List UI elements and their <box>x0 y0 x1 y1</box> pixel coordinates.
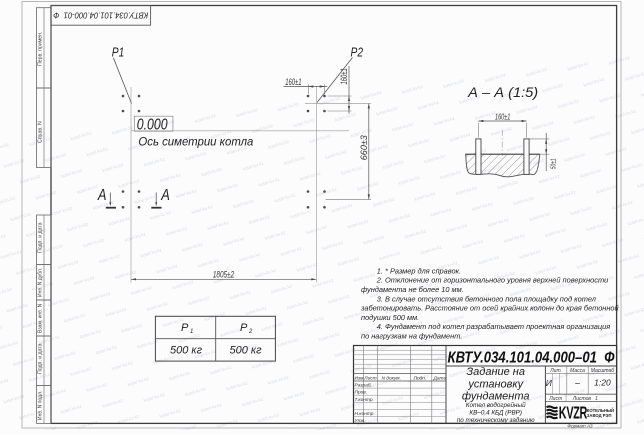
svg-text:Ось симетрии котла: Ось симетрии котла <box>138 134 253 148</box>
svg-text:kotel-kv.kz: kotel-kv.kz <box>44 387 67 398</box>
svg-text:kotel-kv.kz: kotel-kv.kz <box>353 272 376 283</box>
svg-text:N докум.: N докум. <box>382 375 401 381</box>
svg-text:kotel-kv.kz: kotel-kv.kz <box>363 234 386 245</box>
svg-text:kotel-kv.kz: kotel-kv.kz <box>439 169 462 180</box>
svg-text:kotel-kv.kz: kotel-kv.kz <box>283 390 306 401</box>
svg-text:kotel-kv.kz: kotel-kv.kz <box>541 82 564 93</box>
svg-text:kotel-kv.kz: kotel-kv.kz <box>462 238 485 249</box>
svg-text:kotel-kv.kz: kotel-kv.kz <box>264 230 287 241</box>
svg-text:660±3: 660±3 <box>359 135 369 160</box>
svg-text:kotel-kv.kz: kotel-kv.kz <box>252 123 275 134</box>
svg-text:kotel-kv.kz: kotel-kv.kz <box>9 211 32 222</box>
svg-text:kotel-kv.kz: kotel-kv.kz <box>608 55 631 66</box>
svg-text:kotel-kv.kz: kotel-kv.kz <box>615 108 638 119</box>
svg-text:1. * Размер для справок.: 1. * Размер для справок. <box>377 266 461 275</box>
svg-text:kotel-kv.kz: kotel-kv.kz <box>175 424 198 430</box>
svg-text:Пров.: Пров. <box>355 390 368 396</box>
svg-text:А – А (1:5): А – А (1:5) <box>467 84 538 100</box>
svg-text:Задание на: Задание на <box>466 366 525 378</box>
svg-text:kotel-kv.kz: kotel-kv.kz <box>6 302 29 313</box>
svg-text:kotel-kv.kz: kotel-kv.kz <box>398 410 421 421</box>
svg-text:kotel-kv.kz: kotel-kv.kz <box>165 225 188 236</box>
svg-text:kotel-kv.kz: kotel-kv.kz <box>446 222 469 233</box>
svg-text:kotel-kv.kz: kotel-kv.kz <box>99 253 122 264</box>
svg-text:kotel-kv.kz: kotel-kv.kz <box>200 402 223 413</box>
svg-text:забетонировать. Расстояние от: забетонировать. Расстояние от осей крайн… <box>360 304 619 313</box>
svg-text:kotel-kv.kz: kotel-kv.kz <box>382 159 405 170</box>
svg-text:kotel-kv.kz: kotel-kv.kz <box>105 306 128 317</box>
svg-text:Листов: Листов <box>572 396 592 402</box>
svg-text:kotel-kv.kz: kotel-kv.kz <box>236 107 259 118</box>
svg-text:kotel-kv.kz: kotel-kv.kz <box>337 256 360 267</box>
svg-text:kotel-kv.kz: kotel-kv.kz <box>223 236 246 247</box>
svg-text:Р: Р <box>181 322 189 334</box>
svg-text:kotel-kv.kz: kotel-kv.kz <box>306 224 329 235</box>
svg-text:kotel-kv.kz: kotel-kv.kz <box>181 241 204 252</box>
svg-text:kotel-kv.kz: kotel-kv.kz <box>401 84 424 95</box>
svg-text:kotel-kv.kz: kotel-kv.kz <box>134 194 157 205</box>
svg-text:kotel-kv.kz: kotel-kv.kz <box>372 196 395 207</box>
svg-text:kotel-kv.kz: kotel-kv.kz <box>143 156 166 167</box>
svg-text:kotel-kv.kz: kotel-kv.kz <box>579 167 602 178</box>
svg-text:Формат А3: Формат А3 <box>567 423 593 428</box>
svg-text:kotel-kv.kz: kotel-kv.kz <box>188 295 211 306</box>
svg-text:kotel-kv.kz: kotel-kv.kz <box>137 338 160 349</box>
svg-text:kotel-kv.kz: kotel-kv.kz <box>261 321 284 332</box>
svg-text:kotel-kv.kz: kotel-kv.kz <box>324 384 347 395</box>
svg-text:kotel-kv.kz: kotel-kv.kz <box>528 211 551 222</box>
svg-text:kotel-kv.kz: kotel-kv.kz <box>589 130 612 141</box>
svg-text:kotel-kv.kz: kotel-kv.kz <box>255 267 278 278</box>
svg-text:kotel-kv.kz: kotel-kv.kz <box>627 215 644 226</box>
svg-text:kotel-kv.kz: kotel-kv.kz <box>270 283 293 294</box>
svg-text:kotel-kv.kz: kotel-kv.kz <box>621 162 644 173</box>
svg-text:kotel-kv.kz: kotel-kv.kz <box>201 166 224 177</box>
svg-text:kotel-kv.kz: kotel-kv.kz <box>532 120 555 131</box>
svg-text:по техническому заданию: по техническому заданию <box>457 416 535 424</box>
svg-text:kotel-kv.kz: kotel-kv.kz <box>471 201 494 212</box>
svg-text:kotel-kv.kz: kotel-kv.kz <box>156 263 179 274</box>
svg-text:kotel-kv.kz: kotel-kv.kz <box>382 395 405 406</box>
svg-text:kotel-kv.kz: kotel-kv.kz <box>277 101 300 112</box>
svg-text:kotel-kv.kz: kotel-kv.kz <box>538 173 561 184</box>
svg-text:kotel-kv.kz: kotel-kv.kz <box>175 188 198 199</box>
svg-text:Р2: Р2 <box>351 45 364 60</box>
svg-text:1:20: 1:20 <box>594 378 611 388</box>
svg-text:50±1: 50±1 <box>548 158 557 169</box>
svg-text:kotel-kv.kz: kotel-kv.kz <box>118 178 141 189</box>
svg-text:kotel-kv.kz: kotel-kv.kz <box>290 208 313 219</box>
svg-text:kotel-kv.kz: kotel-kv.kz <box>331 202 354 213</box>
svg-text:kotel-kv.kz: kotel-kv.kz <box>226 380 249 391</box>
svg-text:kotel-kv.kz: kotel-kv.kz <box>474 110 497 121</box>
svg-text:kotel-kv.kz: kotel-kv.kz <box>633 269 644 280</box>
svg-text:kotel-kv.kz: kotel-kv.kz <box>554 189 577 200</box>
svg-text:500 кг: 500 кг <box>229 345 262 357</box>
svg-text:kotel-kv.kz: kotel-kv.kz <box>595 183 618 194</box>
svg-text:kotel-kv.kz: kotel-kv.kz <box>45 152 68 163</box>
svg-text:kotel-kv.kz: kotel-kv.kz <box>184 386 207 397</box>
svg-text:kotel-kv.kz: kotel-kv.kz <box>143 392 166 403</box>
svg-text:Разраб.: Разраб. <box>355 383 372 389</box>
svg-text:kotel-kv.kz: kotel-kv.kz <box>420 244 443 255</box>
svg-text:kotel-kv.kz: kotel-kv.kz <box>608 290 631 301</box>
svg-text:KVZR: KVZR <box>559 404 588 423</box>
svg-text:установку: установку <box>467 379 524 391</box>
svg-text:kotel-kv.kz: kotel-kv.kz <box>130 285 153 296</box>
svg-text:kotel-kv.kz: kotel-kv.kz <box>0 142 10 153</box>
svg-text:kotel-kv.kz: kotel-kv.kz <box>0 324 4 335</box>
svg-text:kotel-kv.kz: kotel-kv.kz <box>630 124 644 135</box>
svg-text:kotel-kv.kz: kotel-kv.kz <box>216 182 239 193</box>
svg-text:kotel-kv.kz: kotel-kv.kz <box>76 419 99 430</box>
svg-text:kotel-kv.kz: kotel-kv.kz <box>210 364 233 375</box>
svg-text:kotel-kv.kz: kotel-kv.kz <box>325 149 348 160</box>
svg-text:1: 1 <box>190 329 193 335</box>
svg-text:kotel-kv.kz: kotel-kv.kz <box>67 221 90 232</box>
svg-text:kotel-kv.kz: kotel-kv.kz <box>95 344 118 355</box>
svg-text:160±1: 160±1 <box>285 77 301 87</box>
svg-text:kotel-kv.kz: kotel-kv.kz <box>86 146 109 157</box>
svg-text:kotel-kv.kz: kotel-kv.kz <box>102 398 125 409</box>
svg-text:Справ. N: Справ. N <box>38 121 44 143</box>
svg-text:kotel-kv.kz: kotel-kv.kz <box>35 425 58 430</box>
svg-text:Лист: Лист <box>548 396 562 402</box>
svg-text:Перв. примен.: Перв. примен. <box>38 32 44 67</box>
svg-text:kotel-kv.kz: kotel-kv.kz <box>16 265 39 276</box>
svg-text:160±1: 160±1 <box>339 68 349 84</box>
svg-text:kotel-kv.kz: kotel-kv.kz <box>455 185 478 196</box>
svg-text:Инв. N подл.: Инв. N подл. <box>38 391 44 420</box>
svg-text:kotel-kv.kz: kotel-kv.kz <box>439 405 462 416</box>
svg-text:2: 2 <box>248 329 253 335</box>
svg-text:kotel-kv.kz: kotel-kv.kz <box>293 353 316 364</box>
svg-text:kotel-kv.kz: kotel-kv.kz <box>86 382 109 393</box>
svg-text:kotel-kv.kz: kotel-kv.kz <box>172 279 195 290</box>
svg-text:kotel-kv.kz: kotel-kv.kz <box>624 306 644 317</box>
svg-text:Лист: Лист <box>363 375 376 381</box>
svg-text:kotel-kv.kz: kotel-kv.kz <box>245 305 268 316</box>
svg-text:kotel-kv.kz: kotel-kv.kz <box>0 195 16 206</box>
svg-text:kotel-kv.kz: kotel-kv.kz <box>315 186 338 197</box>
svg-text:kotel-kv.kz: kotel-kv.kz <box>274 192 297 203</box>
svg-text:kotel-kv.kz: kotel-kv.kz <box>477 254 500 265</box>
svg-text:Котел водогрейный: Котел водогрейный <box>466 401 526 409</box>
svg-text:kotel-kv.kz: kotel-kv.kz <box>513 195 536 206</box>
svg-text:kotel-kv.kz: kotel-kv.kz <box>0 179 1 190</box>
svg-text:kotel-kv.kz: kotel-kv.kz <box>89 291 112 302</box>
svg-text:Масса: Масса <box>570 368 585 374</box>
svg-text:kotel-kv.kz: kotel-kv.kz <box>242 160 265 171</box>
svg-text:kotel-kv.kz: kotel-kv.kz <box>102 162 125 173</box>
svg-text:фундамента: фундамента <box>462 391 530 403</box>
svg-text:Подп.: Подп. <box>414 375 427 381</box>
svg-text:kotel-kv.kz: kotel-kv.kz <box>0 233 7 244</box>
svg-text:kotel-kv.kz: kotel-kv.kz <box>73 275 96 286</box>
svg-text:kotel-kv.kz: kotel-kv.kz <box>70 130 93 141</box>
svg-text:kotel-kv.kz: kotel-kv.kz <box>299 170 322 181</box>
svg-text:kotel-kv.kz: kotel-kv.kz <box>321 240 344 251</box>
svg-text:kotel-kv.kz: kotel-kv.kz <box>391 357 414 368</box>
svg-text:kotel-kv.kz: kotel-kv.kz <box>60 168 83 179</box>
svg-text:по нагрузкам на фундамент.: по нагрузкам на фундамент. <box>361 332 462 341</box>
svg-text:kotel-kv.kz: kotel-kv.kz <box>232 198 255 209</box>
svg-text:kotel-kv.kz: kotel-kv.kz <box>516 104 539 115</box>
svg-text:1805±2: 1805±2 <box>213 269 234 279</box>
svg-text:kotel-kv.kz: kotel-kv.kz <box>12 356 35 367</box>
svg-text:kotel-kv.kz: kotel-kv.kz <box>484 72 507 83</box>
svg-text:kotel-kv.kz: kotel-kv.kz <box>124 231 147 242</box>
svg-text:kotel-kv.kz: kotel-kv.kz <box>114 269 137 280</box>
svg-text:kotel-kv.kz: kotel-kv.kz <box>347 218 370 229</box>
svg-text:kotel-kv.kz: kotel-kv.kz <box>576 259 599 270</box>
svg-text:kotel-kv.kz: kotel-kv.kz <box>328 293 351 304</box>
svg-text:kotel-kv.kz: kotel-kv.kz <box>624 71 644 82</box>
svg-text:kotel-kv.kz: kotel-kv.kz <box>611 199 634 210</box>
svg-text:kotel-kv.kz: kotel-kv.kz <box>258 176 281 187</box>
svg-text:kotel-kv.kz: kotel-kv.kz <box>376 105 399 116</box>
svg-text:kotel-kv.kz: kotel-kv.kz <box>3 158 26 169</box>
svg-text:kotel-kv.kz: kotel-kv.kz <box>621 397 644 408</box>
svg-text:–: – <box>574 378 580 388</box>
svg-text:КВТУ.034.101.04.000-01 Ф: КВТУ.034.101.04.000-01 Ф <box>53 10 148 20</box>
svg-text:КВ–0,4 КБД (РВР): КВ–0,4 КБД (РВР) <box>469 410 522 417</box>
svg-text:kotel-kv.kz: kotel-kv.kz <box>519 248 542 259</box>
svg-text:kotel-kv.kz: kotel-kv.kz <box>379 250 402 261</box>
svg-text:Подп. и дата: Подп. и дата <box>38 343 44 374</box>
svg-text:kotel-kv.kz: kotel-kv.kz <box>398 175 421 186</box>
svg-text:kotel-kv.kz: kotel-kv.kz <box>449 131 472 142</box>
svg-text:kotel-kv.kz: kotel-kv.kz <box>433 115 456 126</box>
svg-text:kotel-kv.kz: kotel-kv.kz <box>277 337 300 348</box>
svg-text:kotel-kv.kz: kotel-kv.kz <box>108 215 131 226</box>
svg-text:kotel-kv.kz: kotel-kv.kz <box>0 377 10 388</box>
svg-text:Р: Р <box>240 322 248 334</box>
svg-text:Масштаб: Масштаб <box>591 368 615 374</box>
svg-text:kotel-kv.kz: kotel-kv.kz <box>54 350 77 361</box>
svg-text:kotel-kv.kz: kotel-kv.kz <box>360 89 383 100</box>
svg-text:Т.контр.: Т.контр. <box>355 397 374 403</box>
svg-text:Утв.: Утв. <box>355 418 366 424</box>
svg-text:kotel-kv.kz: kotel-kv.kz <box>548 136 571 147</box>
svg-text:kotel-kv.kz: kotel-kv.kz <box>614 344 637 355</box>
svg-text:Инв. N дубл.: Инв. N дубл. <box>38 268 44 297</box>
svg-text:kotel-kv.kz: kotel-kv.kz <box>544 227 567 238</box>
svg-text:kotel-kv.kz: kotel-kv.kz <box>296 262 319 273</box>
svg-text:kotel-kv.kz: kotel-kv.kz <box>490 126 513 137</box>
svg-text:kotel-kv.kz: kotel-kv.kz <box>586 221 609 232</box>
svg-text:КВТУ.034.101.04.000–01 Ф: КВТУ.034.101.04.000–01 Ф <box>448 349 616 366</box>
svg-text:kotel-kv.kz: kotel-kv.kz <box>57 259 80 270</box>
svg-text:2. Отклонение от горизонтально: 2. Отклонение от горизонтального уровня … <box>376 276 608 285</box>
svg-text:kotel-kv.kz: kotel-kv.kz <box>525 66 548 77</box>
svg-text:И: И <box>546 378 553 388</box>
svg-text:фундамента не более 10 мм.: фундамента не более 10 мм. <box>361 285 464 294</box>
svg-text:kotel-kv.kz: kotel-kv.kz <box>251 358 274 369</box>
svg-text:kotel-kv.kz: kotel-kv.kz <box>207 220 230 231</box>
svg-text:А: А <box>97 187 106 204</box>
svg-text:kotel-kv.kz: kotel-kv.kz <box>79 328 102 339</box>
svg-text:kotel-kv.kz: kotel-kv.kz <box>63 312 86 323</box>
svg-text:Дата: Дата <box>433 375 447 381</box>
svg-text:kotel-kv.kz: kotel-kv.kz <box>366 143 389 154</box>
svg-text:kotel-kv.kz: kotel-kv.kz <box>599 92 622 103</box>
svg-text:Взам. инв. N: Взам. инв. N <box>38 303 44 333</box>
svg-text:kotel-kv.kz: kotel-kv.kz <box>423 389 446 400</box>
svg-text:kotel-kv.kz: kotel-kv.kz <box>159 408 182 419</box>
svg-text:kotel-kv.kz: kotel-kv.kz <box>258 412 281 423</box>
svg-text:kotel-kv.kz: kotel-kv.kz <box>375 341 398 352</box>
svg-text:kotel-kv.kz: kotel-kv.kz <box>293 117 316 128</box>
svg-text:kotel-kv.kz: kotel-kv.kz <box>341 165 364 176</box>
svg-text:kotel-kv.kz: kotel-kv.kz <box>570 205 593 216</box>
svg-text:kotel-kv.kz: kotel-kv.kz <box>309 369 332 380</box>
svg-text:kotel-kv.kz: kotel-kv.kz <box>497 179 520 190</box>
svg-text:kotel-kv.kz: kotel-kv.kz <box>640 322 644 333</box>
svg-text:kotel-kv.kz: kotel-kv.kz <box>35 189 58 200</box>
svg-text:kotel-kv.kz: kotel-kv.kz <box>150 210 173 221</box>
svg-text:0.000: 0.000 <box>137 116 168 133</box>
svg-text:Лит.: Лит. <box>549 368 562 374</box>
svg-text:kotel-kv.kz: kotel-kv.kz <box>83 237 106 248</box>
svg-text:kotel-kv.kz: kotel-kv.kz <box>280 246 303 257</box>
svg-text:kotel-kv.kz: kotel-kv.kz <box>76 184 99 195</box>
svg-text:Подп. и дата: Подп. и дата <box>38 222 44 253</box>
svg-text:500 кг: 500 кг <box>170 345 203 357</box>
svg-text:kotel-kv.kz: kotel-kv.kz <box>267 139 290 150</box>
svg-text:kotel-kv.kz: kotel-kv.kz <box>557 334 580 345</box>
svg-text:kotel-kv.kz: kotel-kv.kz <box>564 152 587 163</box>
svg-text:kotel-kv.kz: kotel-kv.kz <box>51 205 74 216</box>
svg-text:kotel-kv.kz: kotel-kv.kz <box>127 376 150 387</box>
svg-text:3. В случае отсутствия бетонно: 3. В случае отсутствия бетонного пола пл… <box>377 294 597 303</box>
svg-text:1: 1 <box>595 396 598 402</box>
svg-text:kotel-kv.kz: kotel-kv.kz <box>309 133 332 144</box>
svg-text:kotel-kv.kz: kotel-kv.kz <box>630 360 644 371</box>
svg-text:kotel-kv.kz: kotel-kv.kz <box>636 413 644 424</box>
svg-text:kotel-kv.kz: kotel-kv.kz <box>229 289 252 300</box>
svg-text:kotel-kv.kz: kotel-kv.kz <box>248 214 271 225</box>
svg-text:ЗАВОД РЭП: ЗАВОД РЭП <box>587 413 612 418</box>
svg-text:kotel-kv.kz: kotel-kv.kz <box>283 155 306 166</box>
svg-text:kotel-kv.kz: kotel-kv.kz <box>404 228 427 239</box>
svg-text:kotel-kv.kz: kotel-kv.kz <box>146 301 169 312</box>
svg-text:kotel-kv.kz: kotel-kv.kz <box>560 243 583 254</box>
svg-text:kotel-kv.kz: kotel-kv.kz <box>242 396 265 407</box>
svg-text:kotel-kv.kz: kotel-kv.kz <box>0 249 23 260</box>
svg-text:kotel-kv.kz: kotel-kv.kz <box>299 406 322 417</box>
svg-text:kotel-kv.kz: kotel-kv.kz <box>168 370 191 381</box>
svg-text:kotel-kv.kz: kotel-kv.kz <box>334 111 357 122</box>
svg-text:kotel-kv.kz: kotel-kv.kz <box>0 286 13 297</box>
svg-text:А: А <box>160 187 169 204</box>
svg-text:kotel-kv.kz: kotel-kv.kz <box>583 76 606 87</box>
svg-text:kotel-kv.kz: kotel-kv.kz <box>194 113 217 124</box>
svg-text:160±1: 160±1 <box>495 113 510 122</box>
svg-text:kotel-kv.kz: kotel-kv.kz <box>417 100 440 111</box>
svg-text:kotel-kv.kz: kotel-kv.kz <box>41 243 64 254</box>
svg-text:kotel-kv.kz: kotel-kv.kz <box>191 204 214 215</box>
svg-text:kotel-kv.kz: kotel-kv.kz <box>640 86 644 97</box>
svg-text:kotel-kv.kz: kotel-kv.kz <box>60 403 83 414</box>
svg-text:Р1: Р1 <box>112 44 125 59</box>
svg-text:kotel-kv.kz: kotel-kv.kz <box>567 60 590 71</box>
svg-text:Н.контр.: Н.контр. <box>355 411 375 417</box>
svg-text:kotel-kv.kz: kotel-kv.kz <box>392 121 415 132</box>
svg-text:kotel-kv.kz: kotel-kv.kz <box>159 172 182 183</box>
svg-text:kotel-kv.kz: kotel-kv.kz <box>487 217 510 228</box>
svg-text:kotel-kv.kz: kotel-kv.kz <box>357 181 380 192</box>
svg-text:kotel-kv.kz: kotel-kv.kz <box>70 366 93 377</box>
svg-text:kotel-kv.kz: kotel-kv.kz <box>197 257 220 268</box>
svg-text:kotel-kv.kz: kotel-kv.kz <box>503 233 526 244</box>
svg-text:kotel-kv.kz: kotel-kv.kz <box>219 327 242 338</box>
svg-text:kotel-kv.kz: kotel-kv.kz <box>414 191 437 202</box>
svg-text:kotel-kv.kz: kotel-kv.kz <box>0 340 19 351</box>
svg-text:kotel-kv.kz: kotel-kv.kz <box>535 264 558 275</box>
svg-text:kotel-kv.kz: kotel-kv.kz <box>573 114 596 125</box>
svg-text:kotel-kv.kz: kotel-kv.kz <box>19 173 42 184</box>
svg-text:подушки 500 мм.: подушки 500 мм. <box>361 313 419 322</box>
svg-text:kotel-kv.kz: kotel-kv.kz <box>239 251 262 262</box>
svg-text:kotel-kv.kz: kotel-kv.kz <box>140 247 163 258</box>
svg-text:kotel-kv.kz: kotel-kv.kz <box>185 150 208 161</box>
svg-text:kotel-kv.kz: kotel-kv.kz <box>443 78 466 89</box>
svg-text:kotel-kv.kz: kotel-kv.kz <box>388 212 411 223</box>
svg-text:4. Фундамент под котел разраба: 4. Фундамент под котел разрабатывает про… <box>377 322 610 331</box>
svg-text:kotel-kv.kz: kotel-kv.kz <box>408 137 431 148</box>
svg-text:kotel-kv.kz: kotel-kv.kz <box>267 374 290 385</box>
svg-text:kotel-kv.kz: kotel-kv.kz <box>637 178 644 189</box>
svg-text:kotel-kv.kz: kotel-kv.kz <box>423 153 446 164</box>
svg-text:kotel-kv.kz: kotel-kv.kz <box>430 207 453 218</box>
svg-text:kotel-kv.kz: kotel-kv.kz <box>318 331 341 342</box>
svg-text:kotel-kv.kz: kotel-kv.kz <box>302 315 325 326</box>
svg-text:kotel-kv.kz: kotel-kv.kz <box>111 360 134 371</box>
svg-text:kotel-kv.kz: kotel-kv.kz <box>595 419 618 430</box>
svg-text:kotel-kv.kz: kotel-kv.kz <box>121 322 144 333</box>
svg-text:kotel-kv.kz: kotel-kv.kz <box>557 98 580 109</box>
svg-text:Изм.: Изм. <box>355 375 365 381</box>
svg-text:kotel-kv.kz: kotel-kv.kz <box>286 299 309 310</box>
